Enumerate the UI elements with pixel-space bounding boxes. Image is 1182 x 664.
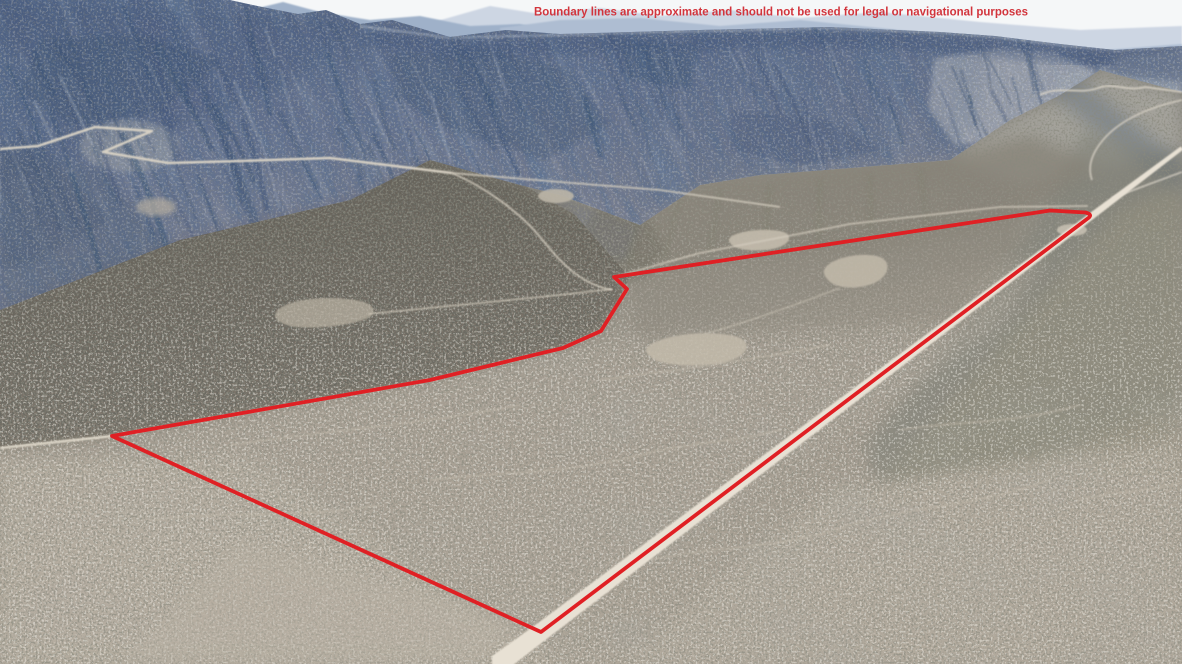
svg-text:Boundary lines are approximate: Boundary lines are approximate and shoul…	[534, 5, 1028, 19]
